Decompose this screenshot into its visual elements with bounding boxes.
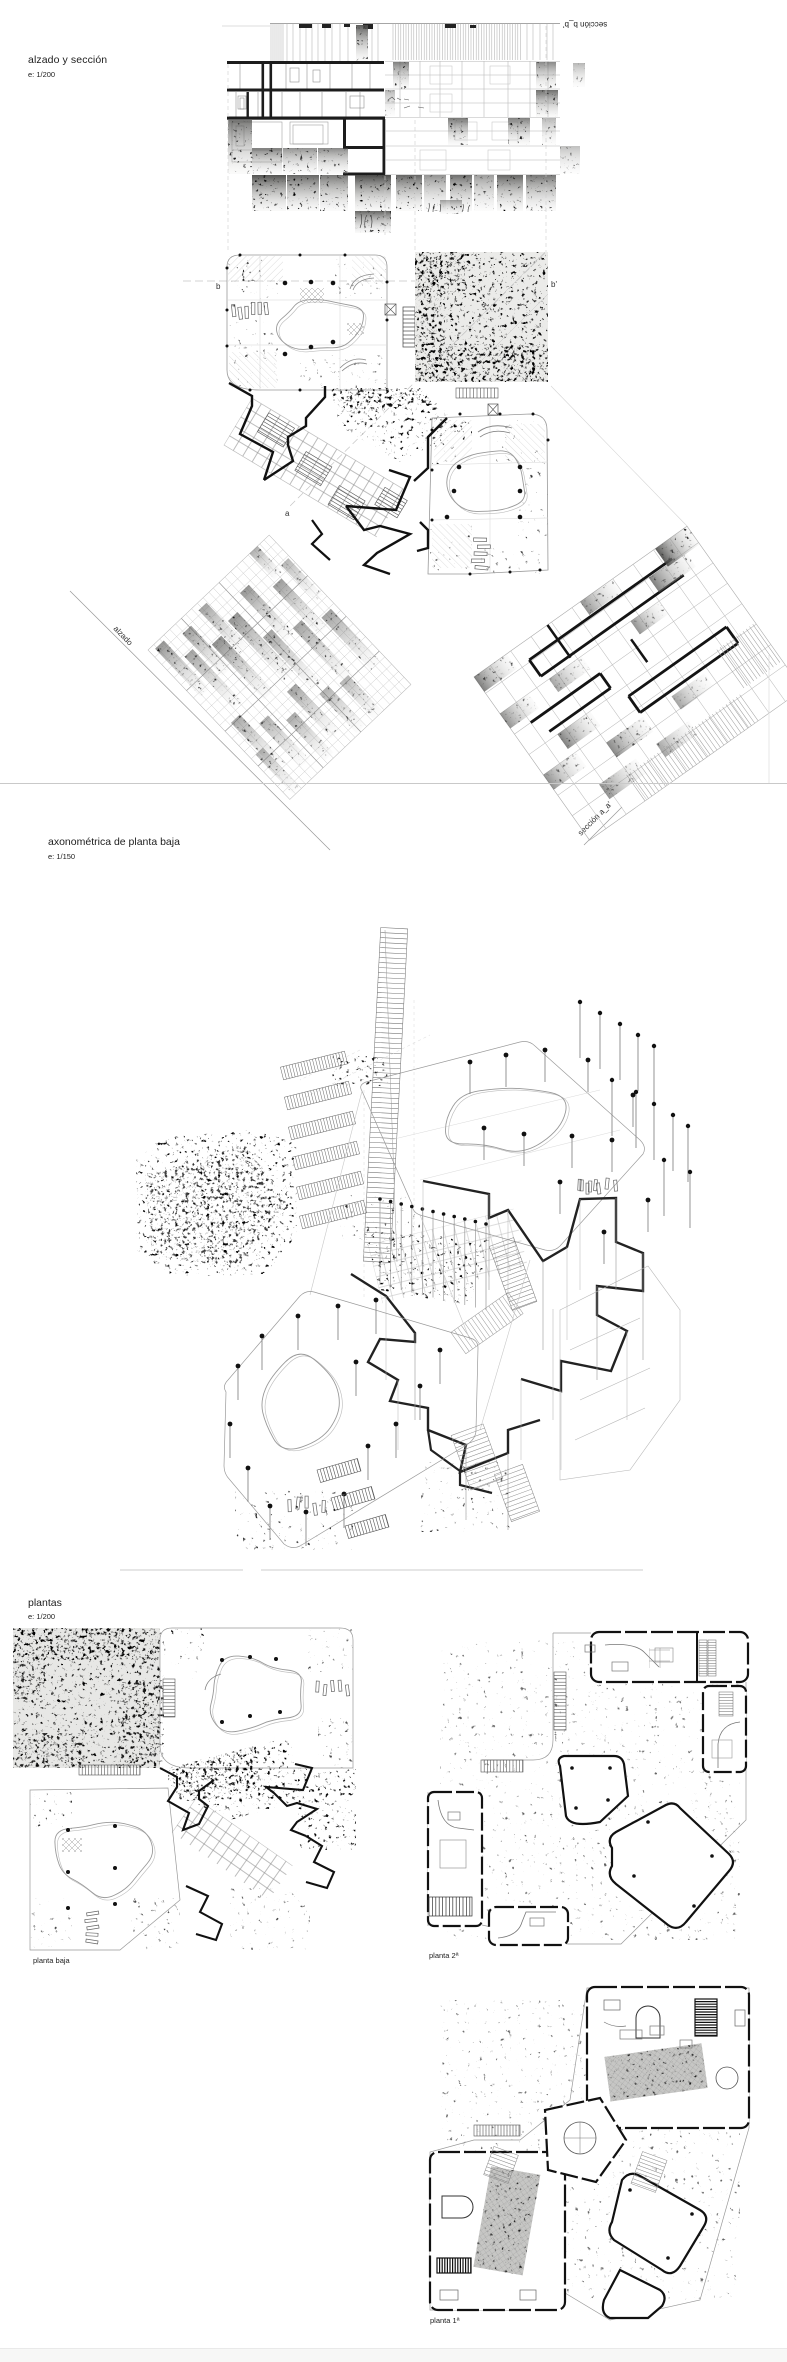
svg-text:sección a_a': sección a_a' — [576, 799, 614, 837]
svg-text:b': b' — [551, 280, 557, 289]
svg-text:b: b — [216, 282, 221, 291]
svg-text:a: a — [285, 509, 290, 518]
